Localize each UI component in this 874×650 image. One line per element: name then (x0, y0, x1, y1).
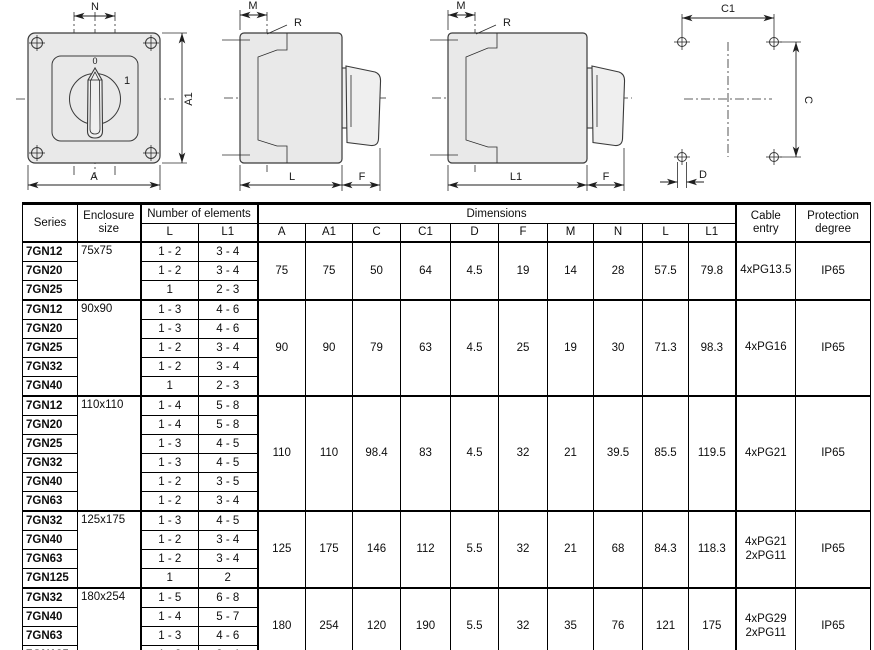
elements-l1-cell: 2 - 3 (199, 377, 258, 397)
elements-l1-cell: 2 - 3 (199, 281, 258, 301)
series-cell: 7GN32 (23, 358, 78, 377)
dim-cell: 75 (306, 242, 353, 300)
dim-cell: 98.4 (353, 396, 401, 511)
elements-l1-cell: 5 - 7 (199, 608, 258, 627)
datasheet-page: 0 1 N A1 A (0, 0, 874, 650)
col-header-dim-d: D (451, 224, 499, 243)
dim-label-a1: A1 (183, 92, 195, 105)
series-cell: 7GN12 (23, 300, 78, 320)
elements-l-cell: 1 - 4 (141, 608, 199, 627)
enclosure-cell: 90x90 (78, 300, 141, 396)
dim-label-l1: L1 (510, 171, 522, 183)
enclosure-body (240, 33, 342, 163)
protection-cell: IP65 (796, 242, 871, 300)
col-header-enclosure: Enclosure size (78, 204, 141, 243)
handle (592, 66, 625, 146)
dim-cell: 180 (258, 588, 306, 650)
elements-l-cell: 1 (141, 281, 199, 301)
col-header-elements-l: L (141, 224, 199, 243)
enclosure-body-long (448, 33, 587, 163)
series-cell: 7GN25 (23, 281, 78, 301)
series-cell: 7GN32 (23, 511, 78, 531)
dim-cell: 25 (499, 300, 548, 396)
side-view-l1: M R L1 F (430, 0, 632, 191)
series-cell: 7GN63 (23, 627, 78, 646)
elements-l1-cell: 4 - 6 (199, 320, 258, 339)
dimension-l: L (240, 165, 342, 191)
dim-label-f: F (603, 171, 610, 183)
series-cell: 7GN125 (23, 646, 78, 650)
series-cell: 7GN63 (23, 492, 78, 512)
dimension-n: N (74, 1, 115, 16)
dim-cell: 110 (306, 396, 353, 511)
dim-cell: 57.5 (643, 242, 689, 300)
dimension-f: F (587, 148, 624, 191)
dim-cell: 146 (353, 511, 401, 588)
dim-cell: 19 (548, 300, 594, 396)
dim-cell: 79.8 (689, 242, 736, 300)
dim-cell: 30 (594, 300, 643, 396)
dim-label-m: M (456, 0, 465, 12)
cable-entry-cell: 4xPG21 (736, 396, 796, 511)
elements-l-cell: 1 - 4 (141, 416, 199, 435)
dim-cell: 120 (353, 588, 401, 650)
spec-table-body: 7GN1275x751 - 23 - 4757550644.519142857.… (23, 242, 871, 650)
elements-l1-cell: 3 - 5 (199, 473, 258, 492)
series-cell: 7GN20 (23, 320, 78, 339)
dimension-a1: A1 (162, 33, 195, 163)
elements-l1-cell: 3 - 4 (199, 242, 258, 262)
protection-cell: IP65 (796, 300, 871, 396)
drill-pattern: C1 C D (660, 3, 814, 188)
cable-entry-cell: 4xPG13.5 (736, 242, 796, 300)
dim-cell: 68 (594, 511, 643, 588)
protection-cell: IP65 (796, 511, 871, 588)
elements-l1-cell: 4 - 5 (199, 511, 258, 531)
dim-cell: 71.3 (643, 300, 689, 396)
dim-cell: 112 (401, 511, 451, 588)
elements-l1-cell: 4 - 6 (199, 627, 258, 646)
elements-l1-cell: 3 - 4 (199, 646, 258, 650)
series-cell: 7GN40 (23, 377, 78, 397)
series-cell: 7GN12 (23, 242, 78, 262)
dim-cell: 84.3 (643, 511, 689, 588)
dim-cell: 28 (594, 242, 643, 300)
dim-cell: 21 (548, 396, 594, 511)
protection-cell: IP65 (796, 588, 871, 650)
side-view-l: M R L F (222, 0, 388, 191)
dim-cell: 4.5 (451, 242, 499, 300)
dim-cell: 79 (353, 300, 401, 396)
col-header-dim-a: A (258, 224, 306, 243)
elements-l-cell: 1 - 2 (141, 339, 199, 358)
dim-cell: 98.3 (689, 300, 736, 396)
elements-l1-cell: 3 - 4 (199, 550, 258, 569)
col-header-dim-n: N (594, 224, 643, 243)
front-view: 0 1 N A1 A (16, 1, 195, 190)
table-header: Series Enclosure size Number of elements… (23, 204, 871, 243)
series-cell: 7GN20 (23, 262, 78, 281)
col-header-protection: Protection degree (796, 204, 871, 243)
col-header-dimensions: Dimensions (258, 204, 736, 224)
cable-entry-cell: 4xPG212xPG11 (736, 511, 796, 588)
elements-l-cell: 1 - 2 (141, 473, 199, 492)
elements-l-cell: 1 (141, 377, 199, 397)
enclosure-cell: 75x75 (78, 242, 141, 300)
elements-l-cell: 1 - 2 (141, 492, 199, 512)
dim-cell: 35 (548, 588, 594, 650)
elements-l-cell: 1 - 5 (141, 588, 199, 608)
elements-l1-cell: 3 - 4 (199, 492, 258, 512)
r-callout: R (267, 17, 302, 34)
table-row: 7GN1290x901 - 34 - 6909079634.525193071.… (23, 300, 871, 320)
dim-cell: 175 (306, 511, 353, 588)
position-label-1: 1 (124, 75, 130, 87)
col-header-dim-a1: A1 (306, 224, 353, 243)
dim-cell: 75 (258, 242, 306, 300)
dim-cell: 14 (548, 242, 594, 300)
enclosure-cell: 180x254 (78, 588, 141, 650)
col-header-series: Series (23, 204, 78, 243)
dim-cell: 83 (401, 396, 451, 511)
dim-cell: 110 (258, 396, 306, 511)
dim-cell: 21 (548, 511, 594, 588)
series-cell: 7GN40 (23, 608, 78, 627)
series-cell: 7GN25 (23, 339, 78, 358)
dimension-l1: L1 (448, 165, 587, 191)
dim-cell: 32 (499, 588, 548, 650)
dim-cell: 64 (401, 242, 451, 300)
elements-l1-cell: 3 - 4 (199, 358, 258, 377)
elements-l1-cell: 4 - 5 (199, 435, 258, 454)
dim-cell: 39.5 (594, 396, 643, 511)
dim-label-d: D (699, 169, 707, 181)
col-header-elements: Number of elements (141, 204, 258, 224)
dim-label-f: F (359, 171, 366, 183)
series-cell: 7GN25 (23, 435, 78, 454)
dim-cell: 175 (689, 588, 736, 650)
elements-l-cell: 1 (141, 569, 199, 589)
elements-l-cell: 1 - 2 (141, 242, 199, 262)
elements-l-cell: 1 - 3 (141, 435, 199, 454)
series-cell: 7GN125 (23, 569, 78, 589)
dim-cell: 32 (499, 511, 548, 588)
enclosure-cell: 125x175 (78, 511, 141, 588)
elements-l-cell: 1 - 2 (141, 262, 199, 281)
dim-cell: 254 (306, 588, 353, 650)
elements-l1-cell: 2 (199, 569, 258, 589)
elements-l-cell: 1 - 3 (141, 320, 199, 339)
dim-cell: 90 (306, 300, 353, 396)
table-row: 7GN12110x1101 - 45 - 811011098.4834.5322… (23, 396, 871, 416)
handle (346, 66, 381, 146)
elements-l-cell: 1 - 4 (141, 396, 199, 416)
elements-l1-cell: 5 - 8 (199, 416, 258, 435)
col-header-dim-c1: C1 (401, 224, 451, 243)
dim-cell: 85.5 (643, 396, 689, 511)
elements-l1-cell: 5 - 8 (199, 396, 258, 416)
table-row: 7GN32125x1751 - 34 - 51251751461125.5322… (23, 511, 871, 531)
col-header-dim-l1: L1 (689, 224, 736, 243)
elements-l1-cell: 3 - 4 (199, 531, 258, 550)
cable-entry-cell: 4xPG16 (736, 300, 796, 396)
dimension-m: M (240, 0, 267, 30)
dim-label-r: R (294, 17, 302, 29)
dim-cell: 5.5 (451, 588, 499, 650)
dimension-c: C (780, 42, 814, 157)
header-row-1: Series Enclosure size Number of elements… (23, 204, 871, 224)
series-cell: 7GN40 (23, 473, 78, 492)
dim-cell: 76 (594, 588, 643, 650)
dim-cell: 32 (499, 396, 548, 511)
r-callout: R (476, 17, 511, 34)
technical-drawings: 0 1 N A1 A (0, 0, 874, 200)
dimension-d: D (660, 162, 707, 188)
elements-l-cell: 1 - 3 (141, 627, 199, 646)
elements-l-cell: 1 - 3 (141, 300, 199, 320)
series-cell: 7GN32 (23, 588, 78, 608)
elements-l1-cell: 4 - 5 (199, 454, 258, 473)
dim-label-a: A (90, 171, 98, 183)
dim-cell: 4.5 (451, 300, 499, 396)
series-cell: 7GN63 (23, 550, 78, 569)
dim-label-n: N (91, 1, 99, 13)
series-cell: 7GN12 (23, 396, 78, 416)
col-header-dim-m: M (548, 224, 594, 243)
elements-l1-cell: 6 - 8 (199, 588, 258, 608)
dim-cell: 119.5 (689, 396, 736, 511)
elements-l1-cell: 4 - 6 (199, 300, 258, 320)
dim-cell: 4.5 (451, 396, 499, 511)
elements-l-cell: 1 - 3 (141, 454, 199, 473)
elements-l-cell: 1 - 2 (141, 358, 199, 377)
protection-cell: IP65 (796, 396, 871, 511)
col-header-cable: Cable entry (736, 204, 796, 243)
elements-l-cell: 1 - 2 (141, 550, 199, 569)
selector-knob (88, 68, 103, 138)
series-cell: 7GN32 (23, 454, 78, 473)
col-header-elements-l1: L1 (199, 224, 258, 243)
dim-cell: 5.5 (451, 511, 499, 588)
elements-l-cell: 1 - 3 (141, 511, 199, 531)
position-label-0: 0 (92, 56, 97, 66)
dim-cell: 63 (401, 300, 451, 396)
dim-cell: 190 (401, 588, 451, 650)
dimension-f: F (342, 148, 380, 191)
cable-entry-cell: 4xPG292xPG11 (736, 588, 796, 650)
elements-l1-cell: 3 - 4 (199, 262, 258, 281)
enclosure-cell: 110x110 (78, 396, 141, 511)
col-header-dim-c: C (353, 224, 401, 243)
spec-table-wrap: Series Enclosure size Number of elements… (22, 202, 872, 650)
series-cell: 7GN20 (23, 416, 78, 435)
dimension-a: A (28, 165, 160, 190)
dim-cell: 50 (353, 242, 401, 300)
table-row: 7GN1275x751 - 23 - 4757550644.519142857.… (23, 242, 871, 262)
table-row: 7GN32180x2541 - 56 - 81802541201905.5323… (23, 588, 871, 608)
dim-cell: 125 (258, 511, 306, 588)
dim-cell: 118.3 (689, 511, 736, 588)
elements-l-cell: 1 - 2 (141, 646, 199, 650)
dim-label-m: M (248, 0, 257, 12)
dim-cell: 121 (643, 588, 689, 650)
elements-l-cell: 1 - 2 (141, 531, 199, 550)
dim-label-c1: C1 (721, 3, 735, 15)
dim-label-l: L (289, 171, 295, 183)
dimension-m: M (448, 0, 475, 30)
col-header-dim-l: L (643, 224, 689, 243)
series-cell: 7GN40 (23, 531, 78, 550)
col-header-dim-f: F (499, 224, 548, 243)
dim-label-r: R (503, 17, 511, 29)
dim-cell: 19 (499, 242, 548, 300)
dim-cell: 90 (258, 300, 306, 396)
dimension-c1: C1 (682, 3, 774, 34)
spec-table: Series Enclosure size Number of elements… (22, 202, 871, 650)
dim-label-c: C (802, 96, 814, 104)
elements-l1-cell: 3 - 4 (199, 339, 258, 358)
